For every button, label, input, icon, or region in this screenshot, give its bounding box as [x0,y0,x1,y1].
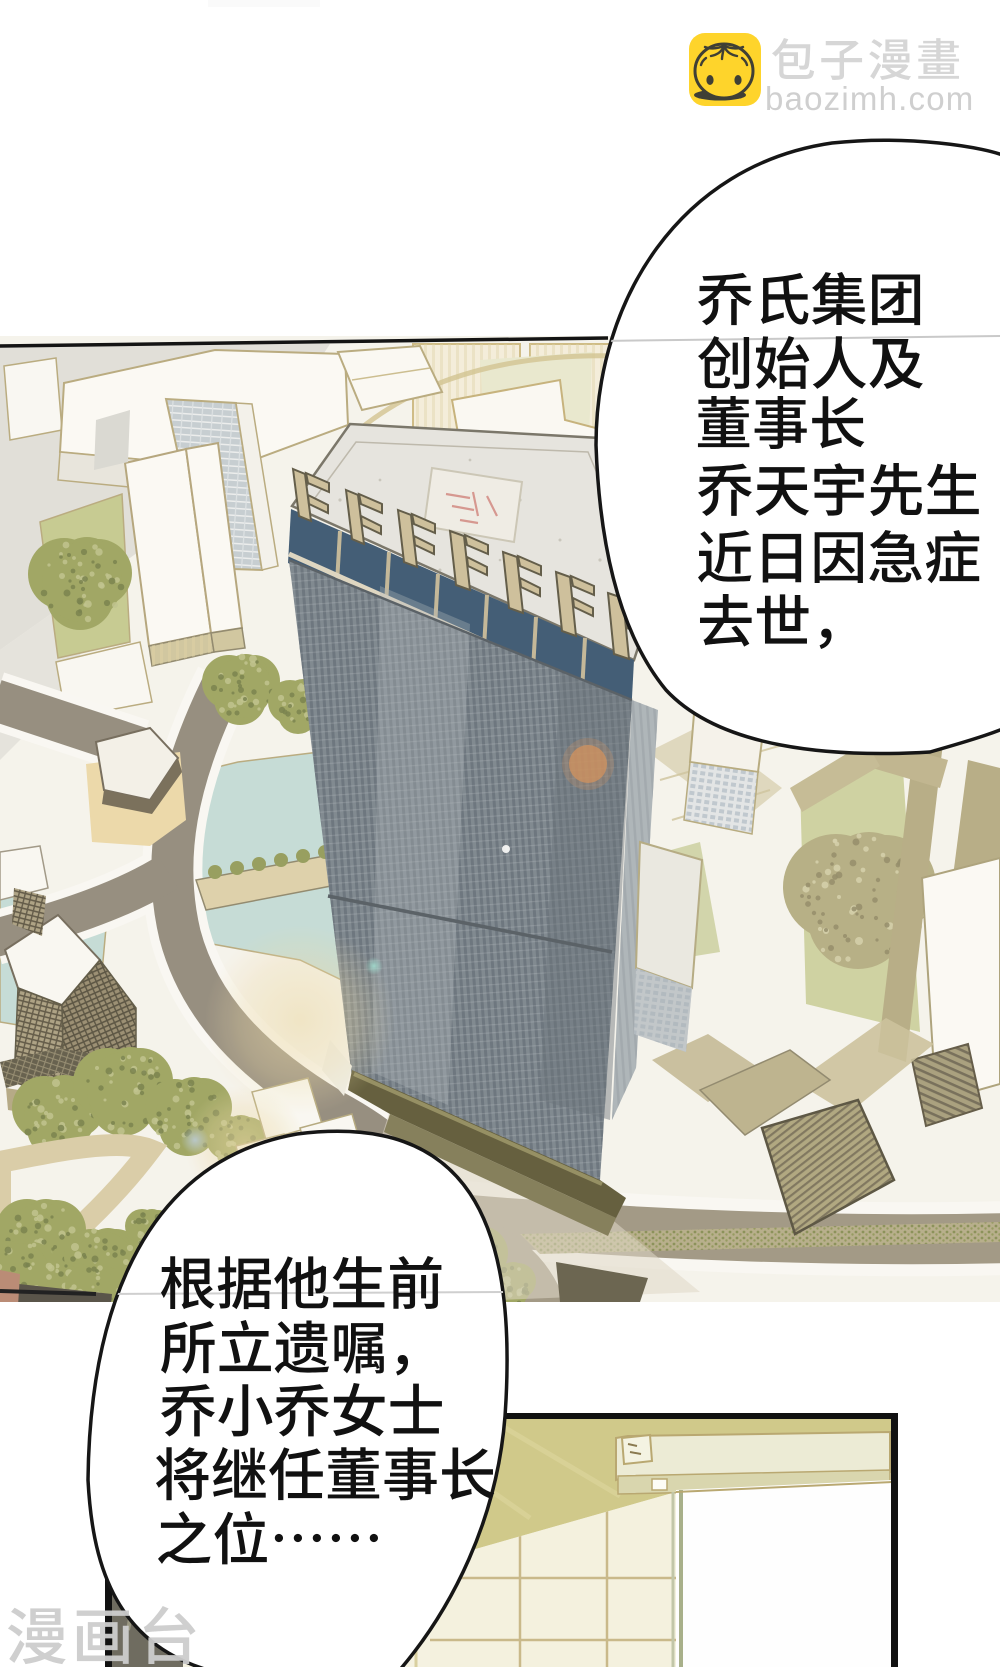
svg-text:baozimh.com: baozimh.com [765,80,974,117]
